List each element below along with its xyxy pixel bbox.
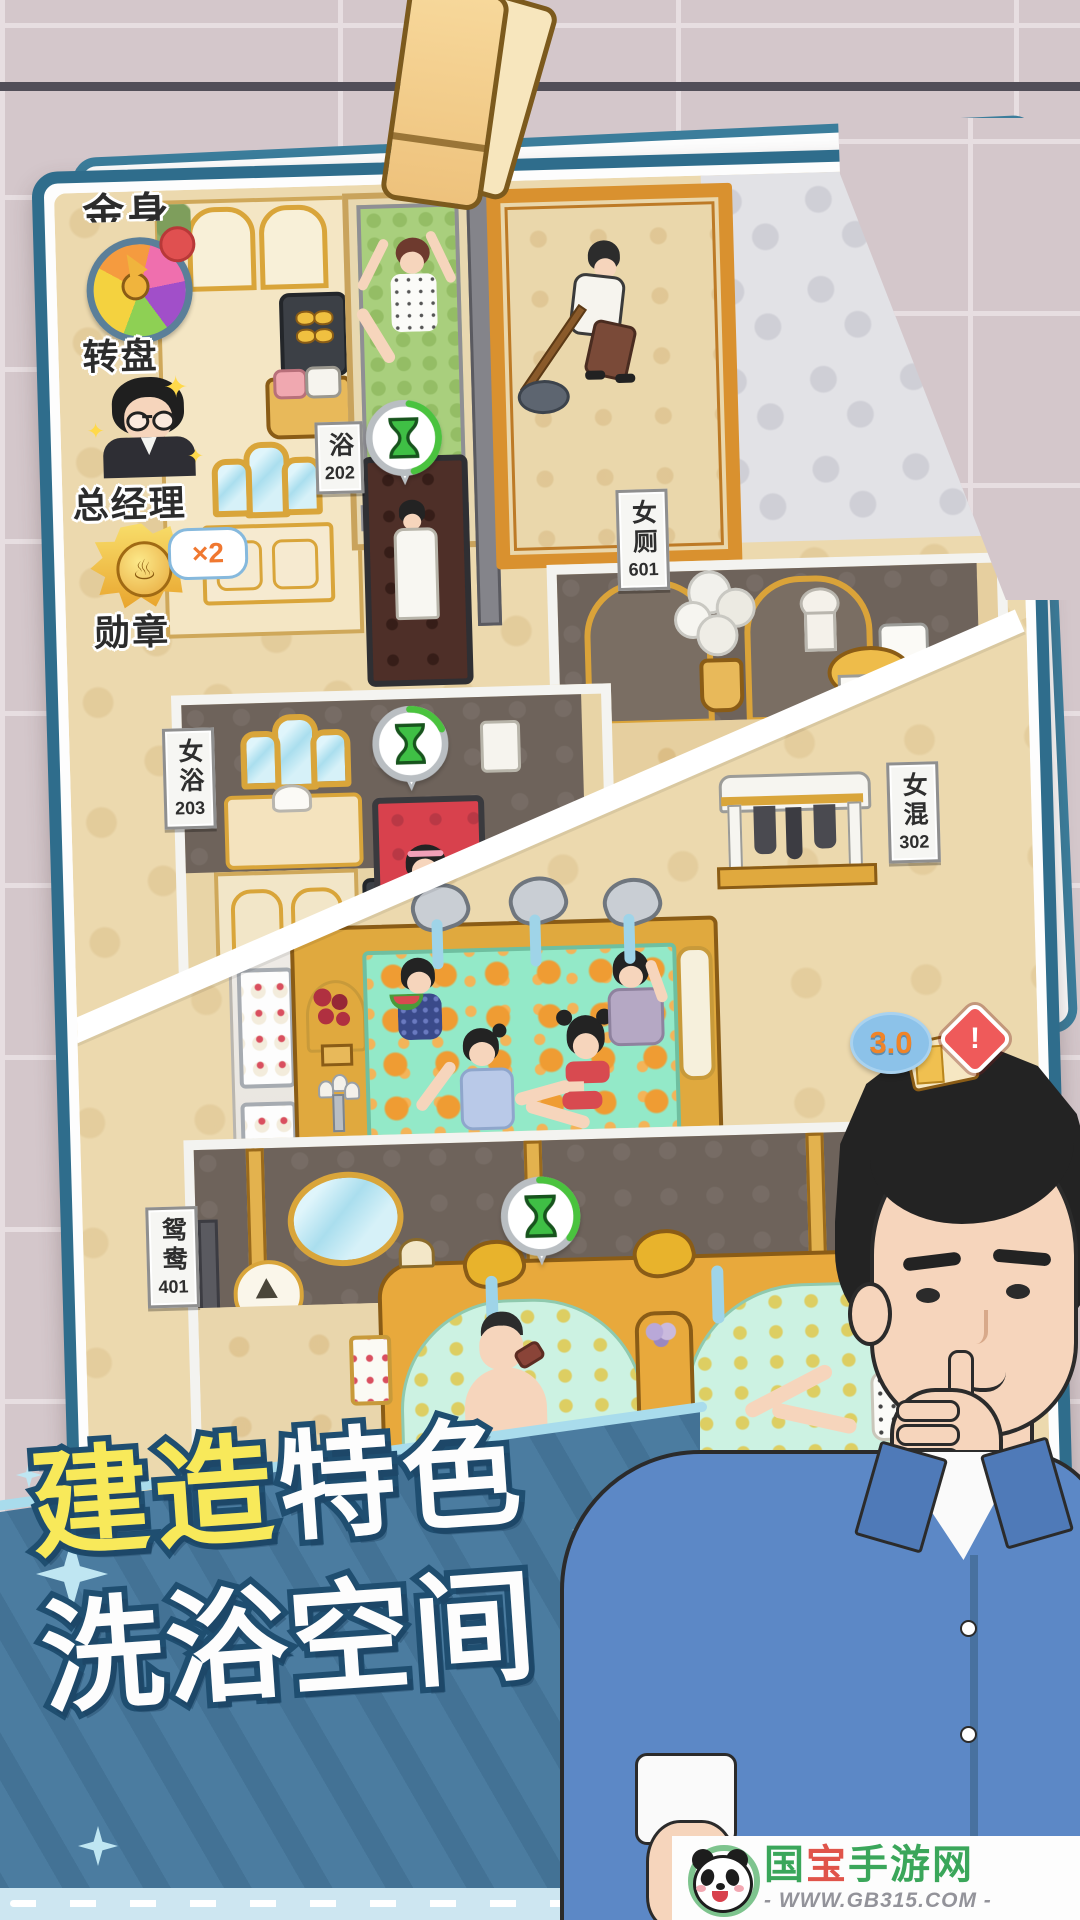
sparkle-icon: ✦ bbox=[86, 418, 105, 445]
rating-value: 3.0 bbox=[869, 1025, 912, 1061]
wheel-label[interactable]: 转盘 bbox=[82, 327, 159, 381]
medal-multiplier: ×2 bbox=[192, 537, 225, 570]
pool-bather bbox=[440, 1027, 523, 1129]
man-finger bbox=[896, 1424, 960, 1446]
sparkle-icon: ✦ bbox=[187, 444, 204, 469]
coat-rack bbox=[718, 771, 871, 885]
tea-tray bbox=[349, 1335, 393, 1406]
room-sign-203: 女浴 203 bbox=[162, 727, 217, 829]
locker-arch bbox=[258, 204, 328, 290]
site-logo[interactable]: 国宝手游网 - WWW.GB315.COM - bbox=[672, 1836, 1080, 1920]
logo-title: 国宝手游网 bbox=[764, 1843, 992, 1887]
bather-arm bbox=[356, 237, 390, 292]
vase bbox=[699, 658, 744, 713]
room-sign-401: 鸳鸯 401 bbox=[145, 1206, 200, 1308]
shower-woman-towel bbox=[393, 527, 440, 620]
warning-mark: ! bbox=[970, 1022, 980, 1056]
room-sign-302: 女混 302 bbox=[886, 761, 941, 863]
candelabra bbox=[314, 1080, 359, 1133]
hud-top-partial: 金身 bbox=[82, 188, 243, 222]
room-sign-label: 浴 bbox=[326, 431, 352, 461]
room-sign-601: 女厕 601 bbox=[615, 489, 670, 591]
man-finger bbox=[896, 1400, 960, 1422]
hallway bbox=[486, 183, 743, 570]
triple-mirror bbox=[234, 713, 346, 786]
room-sign-number: 202 bbox=[324, 462, 355, 484]
banner-highlight: 建造 bbox=[27, 1424, 284, 1573]
man-eye bbox=[1006, 1284, 1030, 1299]
roses bbox=[305, 979, 363, 1065]
man-ear bbox=[848, 1282, 892, 1346]
manager-label[interactable]: 总经理 bbox=[72, 474, 187, 529]
cleaner-shoe bbox=[585, 370, 605, 380]
triple-mirror bbox=[205, 440, 317, 513]
medal-multiplier-bubble: ×2 bbox=[167, 526, 248, 580]
vanity-swan bbox=[224, 792, 364, 870]
flower-vase bbox=[669, 565, 773, 728]
sparkle-icon: ✦ bbox=[163, 370, 189, 406]
promo-screenshot: 浴 202 女厕 601 女浴 203 bbox=[0, 0, 1080, 1920]
man-eye bbox=[916, 1288, 940, 1303]
bather-towel bbox=[390, 273, 438, 332]
massage-mat bbox=[279, 292, 349, 378]
man-button bbox=[960, 1726, 977, 1743]
clothespin bbox=[380, 0, 580, 208]
manager-avatar[interactable]: ✦ ✦ ✦ bbox=[101, 376, 200, 479]
medal-label[interactable]: 勋章 bbox=[93, 603, 170, 657]
cleaner-shoe bbox=[615, 373, 635, 383]
thinking-man bbox=[540, 1020, 1080, 1920]
cake-display bbox=[237, 967, 296, 1089]
room-sign-202: 浴 202 bbox=[314, 421, 364, 494]
man-button bbox=[960, 1620, 977, 1637]
brown-bath bbox=[361, 454, 473, 687]
rating-bubble[interactable]: 3.0 bbox=[850, 1012, 932, 1074]
banner-text: 建造特色 洗浴空间 bbox=[27, 1411, 541, 1725]
lamp bbox=[398, 1237, 435, 1268]
red-bather-headband bbox=[407, 850, 443, 857]
water-stream bbox=[529, 914, 541, 966]
bather-face bbox=[400, 251, 425, 274]
water-stream bbox=[623, 914, 635, 964]
panda-icon bbox=[684, 1843, 754, 1913]
water-stream bbox=[431, 919, 443, 969]
man-nose bbox=[968, 1310, 988, 1344]
hourglass-timer[interactable] bbox=[369, 703, 451, 793]
logo-url: - WWW.GB315.COM - bbox=[764, 1889, 992, 1912]
towel-hook bbox=[480, 720, 521, 773]
hourglass-timer[interactable] bbox=[363, 397, 445, 487]
